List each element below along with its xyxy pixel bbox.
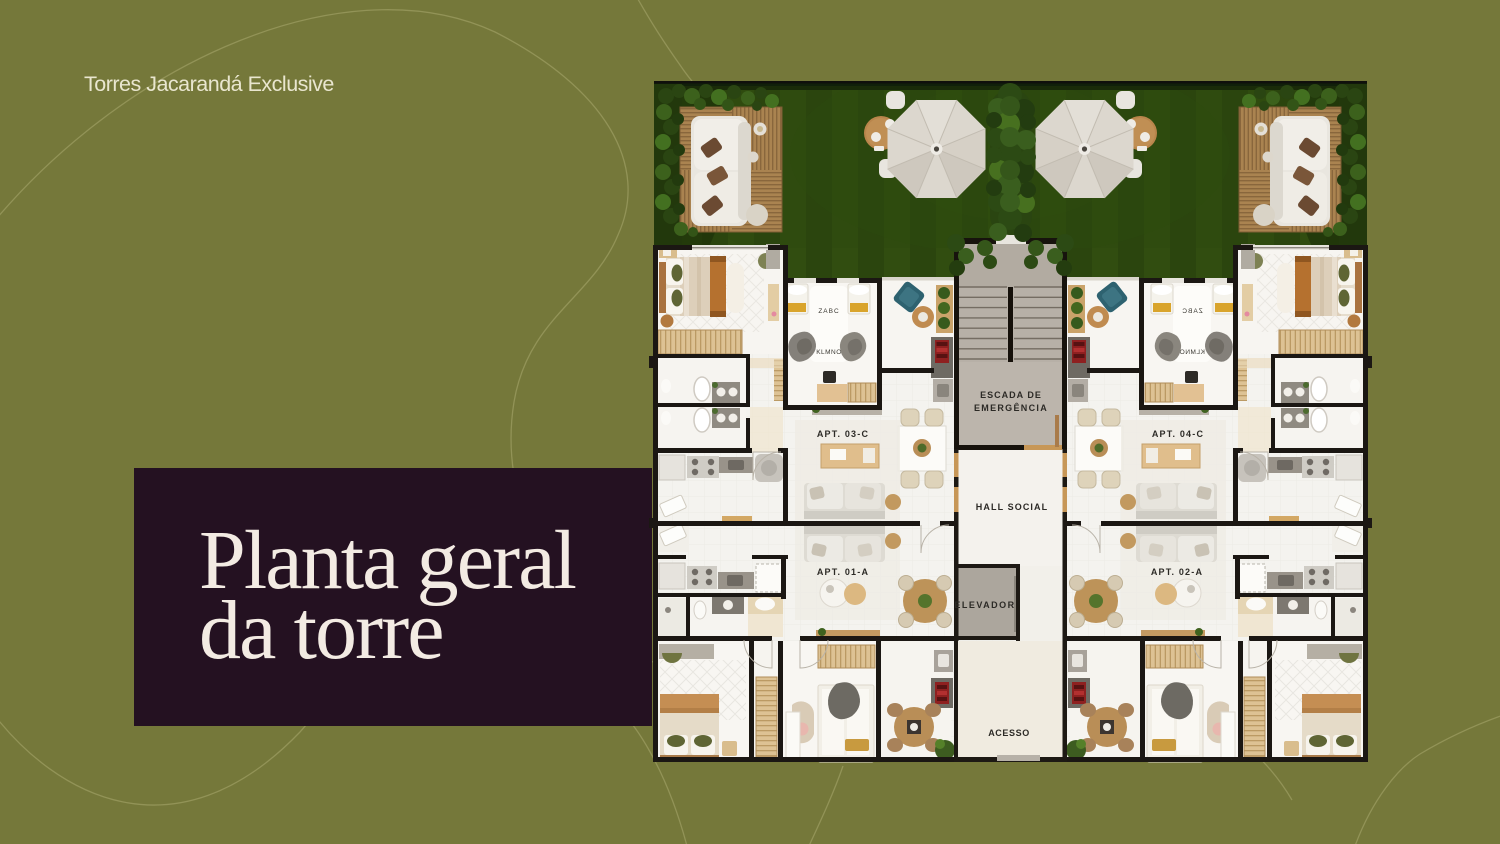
svg-text:HALL SOCIAL: HALL SOCIAL	[976, 502, 1048, 512]
svg-text:Torres Jacarandá Exclusive: Torres Jacarandá Exclusive	[84, 72, 334, 96]
svg-text:APT. 04-C: APT. 04-C	[1152, 429, 1204, 439]
svg-text:ACESSO: ACESSO	[988, 728, 1030, 738]
svg-text:APT. 02-A: APT. 02-A	[1151, 567, 1203, 577]
svg-text:KLMNO: KLMNO	[816, 349, 842, 356]
svg-text:da torre: da torre	[199, 584, 443, 677]
svg-text:ZABC: ZABC	[818, 308, 839, 315]
svg-text:APT. 03-C: APT. 03-C	[817, 429, 869, 439]
svg-text:ELEVADOR: ELEVADOR	[954, 600, 1015, 610]
svg-text:ESCADA DE: ESCADA DE	[980, 390, 1042, 400]
svg-text:EMERGÊNCIA: EMERGÊNCIA	[974, 402, 1048, 413]
svg-text:APT. 01-A: APT. 01-A	[817, 567, 869, 577]
